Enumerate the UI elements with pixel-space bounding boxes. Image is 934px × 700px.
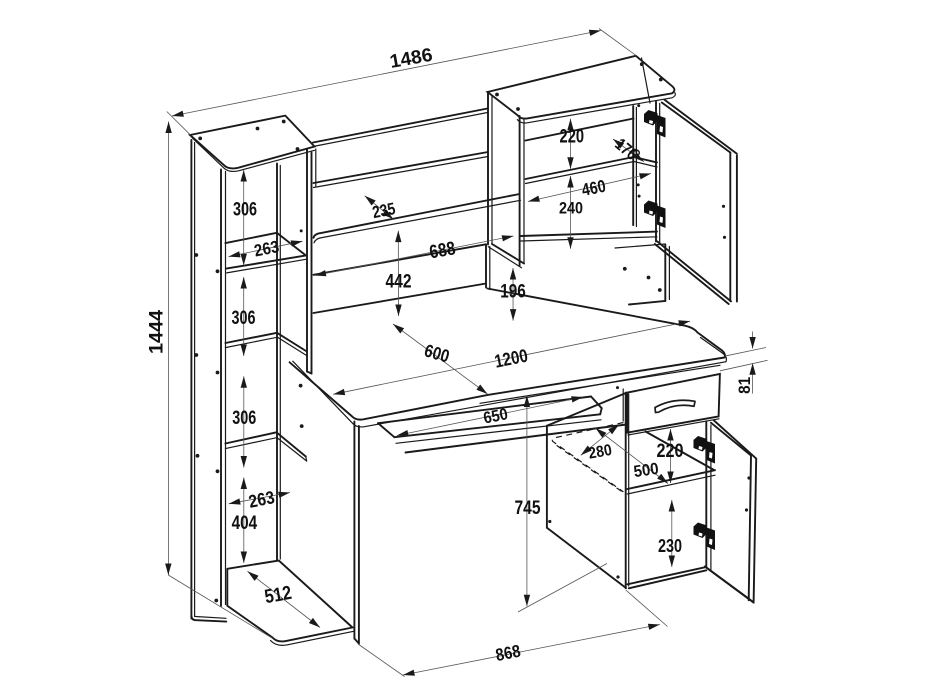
svg-text:745: 745 [515, 498, 541, 519]
svg-text:220: 220 [560, 126, 585, 147]
svg-text:196: 196 [500, 281, 526, 302]
svg-text:230: 230 [658, 536, 682, 556]
svg-text:1444: 1444 [146, 310, 168, 354]
svg-text:81: 81 [735, 377, 754, 394]
svg-text:306: 306 [233, 199, 257, 221]
svg-text:220: 220 [657, 441, 684, 462]
svg-text:306: 306 [232, 307, 256, 329]
svg-text:688: 688 [428, 238, 457, 263]
svg-text:306: 306 [232, 407, 256, 429]
svg-text:512: 512 [263, 582, 294, 608]
svg-text:442: 442 [386, 271, 412, 292]
svg-text:404: 404 [232, 513, 258, 534]
svg-text:500: 500 [632, 460, 659, 481]
svg-text:240: 240 [559, 199, 583, 218]
